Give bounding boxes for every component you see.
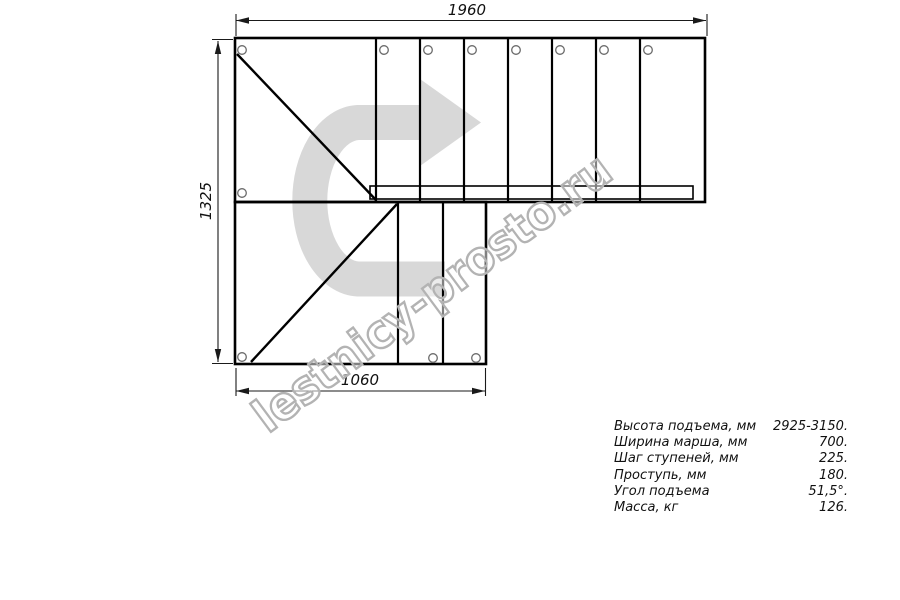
specs-table: Высота подъема, мм 2925-3150. Ширина мар…: [614, 419, 848, 516]
stair-plan-lines: [235, 38, 705, 364]
dim-arrow-right: [472, 388, 485, 394]
spec-row-tread: Проступь, мм 180.: [614, 468, 848, 484]
spec-label: Масса, кг: [614, 500, 678, 516]
spec-value: 180.: [819, 468, 848, 484]
spec-value: 700.: [819, 435, 848, 451]
spec-value: 2925-3150.: [773, 419, 848, 435]
spec-row-height: Высота подъема, мм 2925-3150.: [614, 419, 848, 435]
spec-label: Высота подъема, мм: [614, 419, 756, 435]
dim-top-label: 1960: [448, 1, 486, 19]
spec-row-step-pitch: Шаг ступеней, мм 225.: [614, 451, 848, 467]
dim-arrow-down: [215, 349, 221, 362]
dim-arrow-left: [236, 17, 249, 23]
spec-label: Ширина марша, мм: [614, 435, 747, 451]
spec-label: Проступь, мм: [614, 468, 706, 484]
spec-value: 126.: [819, 500, 848, 516]
dim-arrow-up: [215, 41, 221, 54]
spec-row-march-width: Ширина марша, мм 700.: [614, 435, 848, 451]
dim-arrow-left: [236, 388, 249, 394]
spec-row-angle: Угол подъема 51,5°.: [614, 484, 848, 500]
spec-value: 51,5°.: [808, 484, 848, 500]
spec-row-mass: Масса, кг 126.: [614, 500, 848, 516]
spec-label: Шаг ступеней, мм: [614, 451, 739, 467]
spec-label: Угол подъема: [614, 484, 710, 500]
dim-arrow-right: [693, 17, 706, 23]
dimension-left: [212, 40, 233, 364]
dim-left-label: 1325: [197, 182, 215, 220]
stair-drawing-canvas: 1960 1325 1060 lestnicy-prosto.ru Высота…: [0, 0, 900, 600]
spec-value: 225.: [819, 451, 848, 467]
